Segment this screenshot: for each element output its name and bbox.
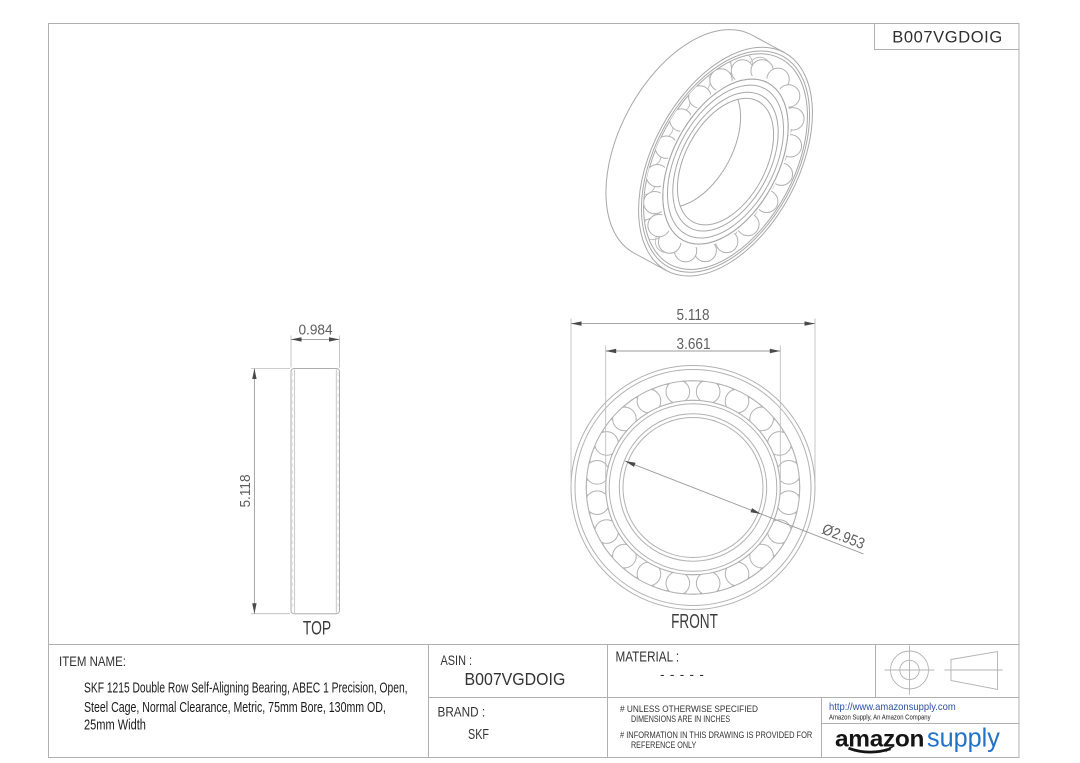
svg-text:5.118: 5.118 bbox=[238, 474, 255, 507]
svg-text:supply: supply bbox=[927, 724, 1000, 752]
svg-text:MATERIAL :: MATERIAL : bbox=[616, 648, 680, 665]
svg-text:25mm Width: 25mm Width bbox=[84, 716, 146, 733]
svg-text:- - - - -: - - - - - bbox=[660, 667, 705, 682]
svg-text:ASIN :: ASIN : bbox=[441, 653, 473, 669]
svg-text:Steel Cage, Normal Clearance,: Steel Cage, Normal Clearance, Metric, 75… bbox=[84, 698, 386, 715]
svg-text:SKF: SKF bbox=[468, 725, 489, 742]
svg-text:Amazon Supply, An Amazon Compa: Amazon Supply, An Amazon Company bbox=[829, 714, 931, 722]
svg-text:0.984: 0.984 bbox=[298, 322, 332, 339]
svg-text:TOP: TOP bbox=[303, 617, 331, 639]
svg-text:SKF 1215 Double Row Self-Align: SKF 1215 Double Row Self-Aligning Bearin… bbox=[84, 678, 408, 696]
svg-text:3.661: 3.661 bbox=[677, 336, 711, 353]
svg-text:amazon: amazon bbox=[835, 726, 924, 752]
svg-text:ITEM NAME:: ITEM NAME: bbox=[59, 653, 126, 669]
svg-text:FRONT: FRONT bbox=[671, 611, 718, 633]
svg-text:5.118: 5.118 bbox=[677, 307, 710, 324]
svg-text:REFERENCE ONLY: REFERENCE ONLY bbox=[631, 740, 697, 750]
svg-text:DIMENSIONS ARE IN INCHES: DIMENSIONS ARE IN INCHES bbox=[631, 714, 731, 724]
svg-text:BRAND :: BRAND : bbox=[438, 704, 486, 720]
svg-text:# INFORMATION IN THIS DRAWING: # INFORMATION IN THIS DRAWING IS PROVIDE… bbox=[620, 730, 812, 740]
svg-text:http://www.amazonsupply.com: http://www.amazonsupply.com bbox=[829, 702, 956, 714]
svg-text:# UNLESS OTHERWISE SPECIFIED: # UNLESS OTHERWISE SPECIFIED bbox=[620, 704, 758, 714]
svg-text:B007VGDOIG: B007VGDOIG bbox=[465, 669, 566, 689]
svg-text:B007VGDOIG: B007VGDOIG bbox=[892, 29, 1003, 47]
